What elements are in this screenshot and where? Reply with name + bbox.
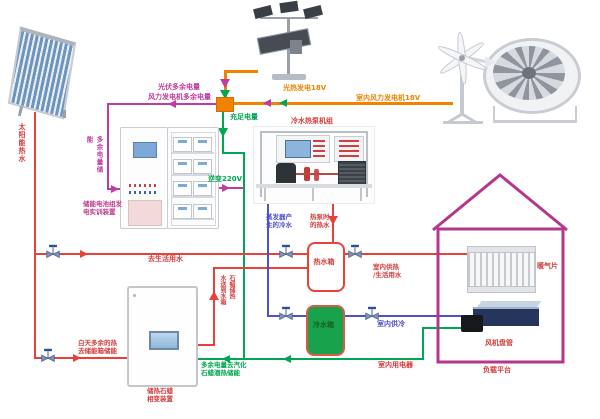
pv-main-panel <box>257 28 311 55</box>
cabinet-lower-panel <box>128 200 162 226</box>
wire-power-up-to-house <box>422 327 424 360</box>
label-inverter: 逆变220V <box>208 175 242 184</box>
radiator-bottom-header <box>468 286 535 292</box>
indicator-row <box>129 184 159 187</box>
radiator-top-header <box>468 247 535 253</box>
label-paraffin-device: 储热石蜡 相变装置 <box>147 387 173 403</box>
wind-turbine-and-fan <box>423 16 578 128</box>
bench-leg <box>360 188 362 201</box>
solar-collector-leg <box>63 110 66 118</box>
battery-box <box>173 159 192 174</box>
battery-box <box>173 137 192 152</box>
side-panel <box>334 136 364 162</box>
arrow-down-excess-icon <box>220 79 230 88</box>
control-cabinet <box>120 127 168 229</box>
pipe-tank-paraffin-v <box>213 267 215 345</box>
label-pv-generation: 光热发电18V <box>283 84 326 93</box>
arrow-inverter-icon <box>222 184 230 192</box>
label-to-domestic-water: 去生活用水 <box>148 255 183 264</box>
label-battery-cabinet: 储能电池组发 电实训装置 <box>83 200 122 216</box>
valve-icon <box>278 244 294 263</box>
label-hot-tank: 热水箱 <box>307 258 341 267</box>
arrow-left-wind-grn-icon <box>279 99 287 107</box>
indicator-row <box>129 191 159 194</box>
wire-sufficient-jog <box>222 152 245 154</box>
label-pv-excess: 光伏多余电量 <box>158 83 200 92</box>
label-wind-generation: 室内风力发电机18V <box>356 94 420 103</box>
pipe-solar-hot-vertical <box>34 112 36 359</box>
pv-base <box>272 74 306 80</box>
compressor <box>276 163 296 183</box>
junction-box <box>216 97 234 112</box>
cabinet-screen <box>133 142 157 158</box>
cold-water-tank <box>306 305 345 356</box>
label-day-excess-heat: 白天多余的热 去储能箱储能 <box>78 339 117 355</box>
wire-excess-to-battery <box>107 103 217 105</box>
wire-inverter-220v <box>216 187 244 189</box>
control-panel <box>276 135 330 163</box>
battery-box <box>173 204 192 219</box>
label-heat-pump-hot: 热泵时 的热水 <box>310 213 330 229</box>
label-excess-to-storage: 多余电量储能 <box>84 136 104 174</box>
label-indoor-cooling: 室内供冷 <box>377 320 405 329</box>
shelf <box>172 152 214 154</box>
label-cold-tank: 冷水箱 <box>306 321 341 330</box>
red-vessel <box>314 169 319 181</box>
arrow-left-wind-mag-icon <box>263 99 271 107</box>
valve-icon <box>40 348 56 367</box>
panel-buttons <box>313 140 325 157</box>
battery-box <box>193 137 212 152</box>
label-solar-hot-water: 太阳能热水 <box>17 123 27 167</box>
pv-mini-panel <box>279 1 298 13</box>
label-sufficient-power: 充足电量 <box>230 113 258 122</box>
condenser-coil <box>338 161 366 185</box>
energy-system-diagram: 光伏多余电量 风力发电机多余电量 光热发电18V 室内风力发电机18V 充足电量… <box>0 0 600 419</box>
bench-pipe <box>296 173 338 175</box>
radiator <box>467 246 536 293</box>
battery-storage-cabinets <box>119 126 218 229</box>
bench-top-rail <box>260 131 368 133</box>
label-evaporator-cold: 蒸发器产 生的冷水 <box>266 213 292 229</box>
pv-mini-panel <box>303 5 323 19</box>
wind-turbine <box>423 16 533 128</box>
label-excess-vaporize: 多余电量去汽化 石蜡潜热储能 <box>201 361 247 377</box>
valve-icon <box>347 244 363 263</box>
solar-collector-panel <box>8 26 76 119</box>
pv-control-box <box>290 40 302 54</box>
valve-icon <box>45 244 61 263</box>
solar-collector <box>5 28 80 120</box>
shelf <box>172 196 214 198</box>
label-wind-excess: 风力发电机多余电量 <box>148 93 211 102</box>
arrow-down-junction-icon <box>218 128 228 137</box>
label-load-platform: 负载平台 <box>483 366 511 375</box>
arrow-domestic-icon <box>80 250 88 258</box>
arrow-bottom-grn2-icon <box>283 355 291 363</box>
battery-box <box>173 181 192 196</box>
wire-excess-drop <box>107 103 109 189</box>
pv-tracker-station <box>250 2 330 86</box>
fan-coil-unit <box>461 298 545 335</box>
pipe-tank-paraffin-h <box>213 267 308 269</box>
solar-collector-leg <box>18 106 23 116</box>
heat-pump-bench <box>253 126 375 204</box>
wire-sufficient-main <box>243 152 245 360</box>
paraffin-storage-device <box>127 286 198 387</box>
bench-leg <box>264 188 266 201</box>
bench-leg <box>312 188 314 201</box>
panel-screen <box>285 140 311 158</box>
valve-icon <box>278 306 294 325</box>
battery-box <box>193 204 212 219</box>
label-indoor-appliances: 室内用电器 <box>378 361 413 370</box>
bench-table <box>256 184 372 188</box>
label-fan-coil: 风机盘管 <box>485 339 513 348</box>
arrow-into-cabinet-icon <box>111 185 119 193</box>
label-paraffin-to-tank-col1: 水送到水箱 <box>218 275 227 311</box>
label-radiator: 暖气片 <box>537 262 558 271</box>
side-panel-buttons <box>339 140 359 157</box>
label-paraffin-to-tank-col2: 石蜡储热 <box>227 275 236 305</box>
battery-box <box>193 159 212 174</box>
hot-water-tank <box>307 242 345 292</box>
paraffin-indicator <box>133 294 136 297</box>
label-indoor-heating: 室内供热 /生活用水 <box>373 263 401 279</box>
fan-coil-motor <box>461 315 483 332</box>
label-heat-pump-unit: 冷水热泵机组 <box>291 117 333 126</box>
paraffin-display <box>149 331 179 350</box>
